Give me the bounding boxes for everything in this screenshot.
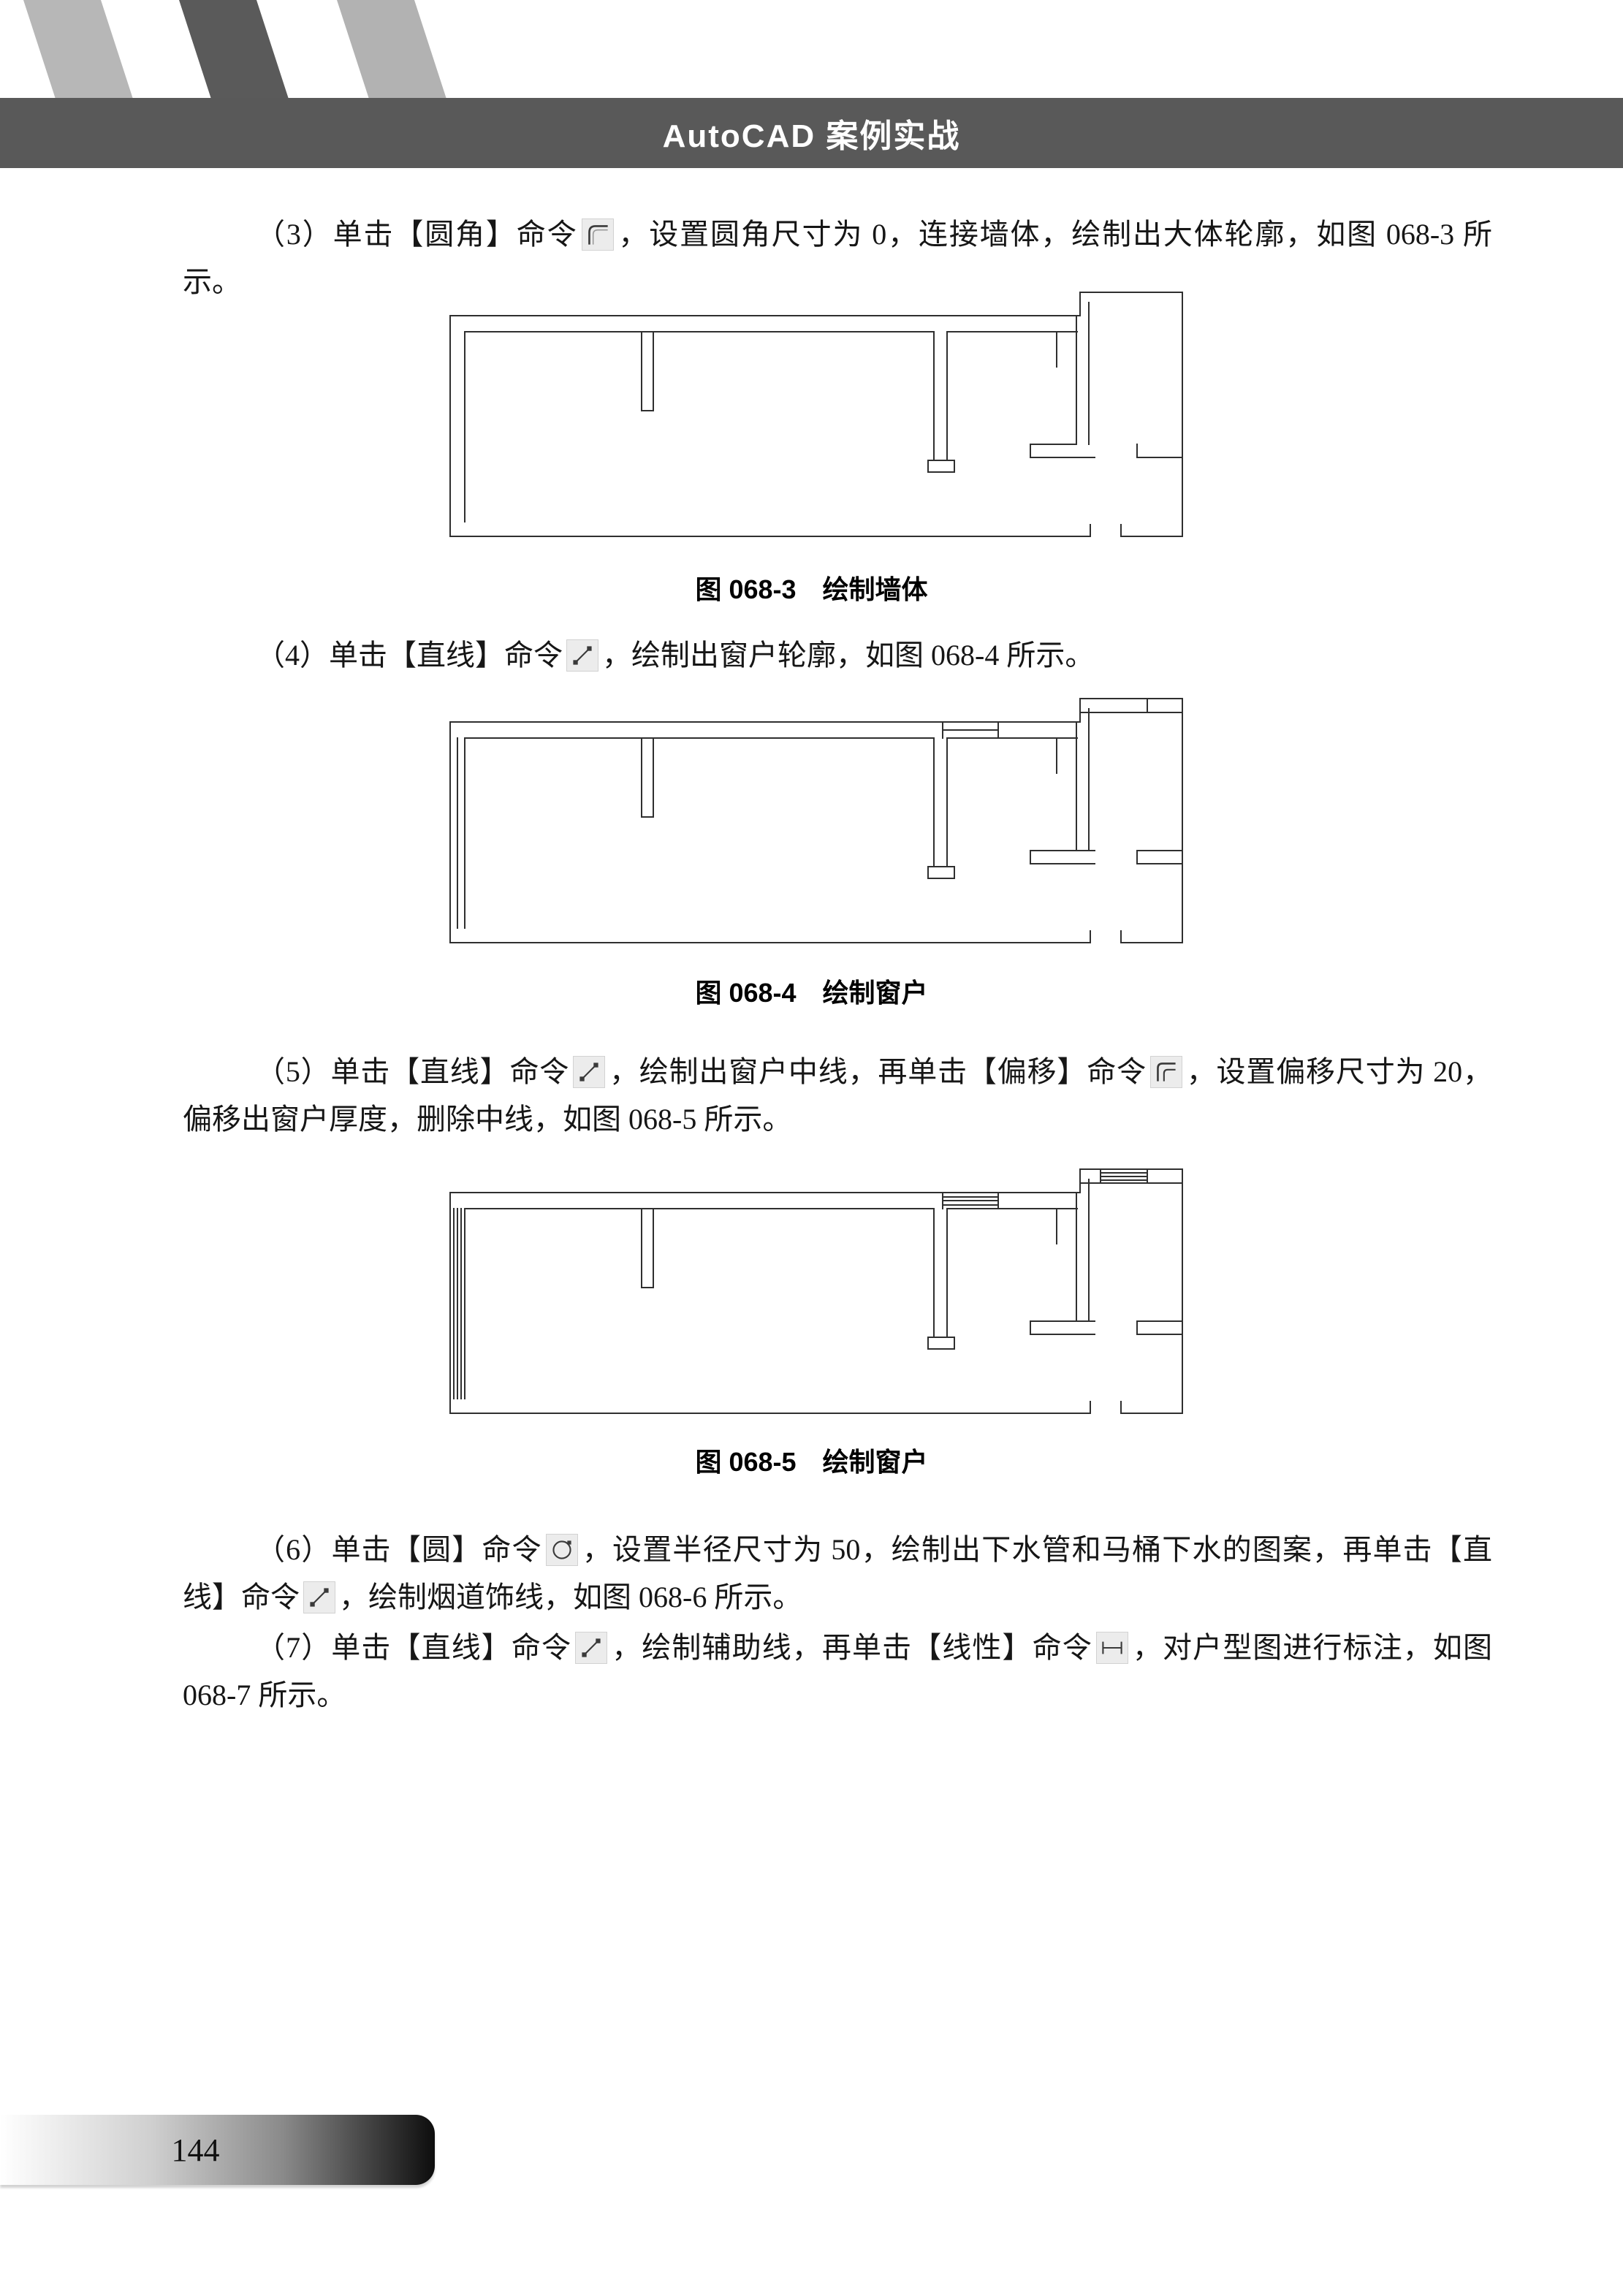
header-stripe-2 — [179, 0, 289, 98]
figure-068-4-caption: 图 068-4 绘制窗户 — [0, 972, 1623, 1010]
text-run: ，绘制辅助线，再单击【线性】命令 — [611, 1631, 1092, 1664]
header-stripe-3 — [337, 0, 446, 98]
header-stripe-1 — [23, 0, 133, 98]
figure-068-5-drawing — [424, 1163, 1198, 1441]
text-run: （7）单击【直线】命令 — [256, 1631, 571, 1664]
line-icon — [303, 1581, 335, 1613]
text-run: （6）单击【圆】命令 — [256, 1533, 542, 1566]
page-header-title: AutoCAD 案例实战 — [663, 110, 961, 156]
text-run: ，绘制出窗户中线，再单击【偏移】命令 — [609, 1055, 1147, 1088]
text-run: ，绘制出窗户轮廓，如图 068-4 所示。 — [602, 639, 1094, 672]
page-number: 144 — [172, 2132, 264, 2169]
page-header-banner: AutoCAD 案例实战 — [0, 98, 1623, 168]
book-page: AutoCAD 案例实战 （3）单击【圆角】命令，设置圆角尺寸为 0，连接墙体，… — [0, 0, 1623, 2296]
figure-068-5-caption: 图 068-5 绘制窗户 — [0, 1441, 1623, 1479]
text-run: （5）单击【直线】命令 — [256, 1055, 569, 1088]
page-number-bar: 144 — [0, 2115, 435, 2185]
text-run: ，绘制烟道饰线，如图 068-6 所示。 — [339, 1581, 802, 1613]
fillet-icon — [582, 218, 614, 251]
paragraph-step-6: （6）单击【圆】命令，设置半径尺寸为 50，绘制出下水管和马桶下水的图案，再单击… — [183, 1526, 1492, 1621]
figure-068-3-drawing — [424, 286, 1198, 564]
paragraph-step-5: （5）单击【直线】命令，绘制出窗户中线，再单击【偏移】命令，设置偏移尺寸为 20… — [183, 1048, 1492, 1143]
line-icon — [575, 1632, 607, 1664]
paragraph-step-7: （7）单击【直线】命令，绘制辅助线，再单击【线性】命令，对户型图进行标注，如图 … — [183, 1624, 1492, 1719]
figure-068-4-drawing — [424, 693, 1198, 970]
linear-dim-icon — [1096, 1632, 1128, 1664]
line-icon — [566, 639, 598, 672]
text-run: （4）单击【直线】命令 — [256, 639, 563, 672]
header-stripes — [0, 0, 555, 98]
figure-068-3-caption: 图 068-3 绘制墙体 — [0, 569, 1623, 607]
paragraph-step-4: （4）单击【直线】命令，绘制出窗户轮廓，如图 068-4 所示。 — [183, 631, 1492, 679]
line-icon — [573, 1056, 605, 1088]
circle-icon — [546, 1534, 578, 1566]
offset-icon — [1150, 1056, 1182, 1088]
text-run: （3）单击【圆角】命令 — [256, 218, 578, 251]
